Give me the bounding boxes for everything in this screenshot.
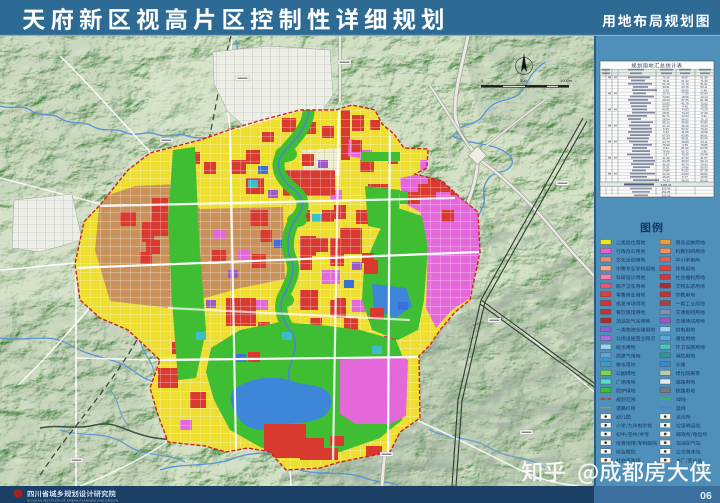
svg-text:500: 500 xyxy=(520,78,527,83)
svg-text:SICHUAN INSTITUTE OF URBAN PLA: SICHUAN INSTITUTE OF URBAN PLANNING AND … xyxy=(27,499,118,503)
svg-text:1000m: 1000m xyxy=(560,78,573,83)
svg-text:36.53: 36.53 xyxy=(681,178,689,182)
svg-text:83.20: 83.20 xyxy=(700,178,708,182)
svg-text:232.63: 232.63 xyxy=(662,193,671,197)
svg-text:74.33: 74.33 xyxy=(662,178,670,182)
svg-text:06: 06 xyxy=(700,490,712,502)
